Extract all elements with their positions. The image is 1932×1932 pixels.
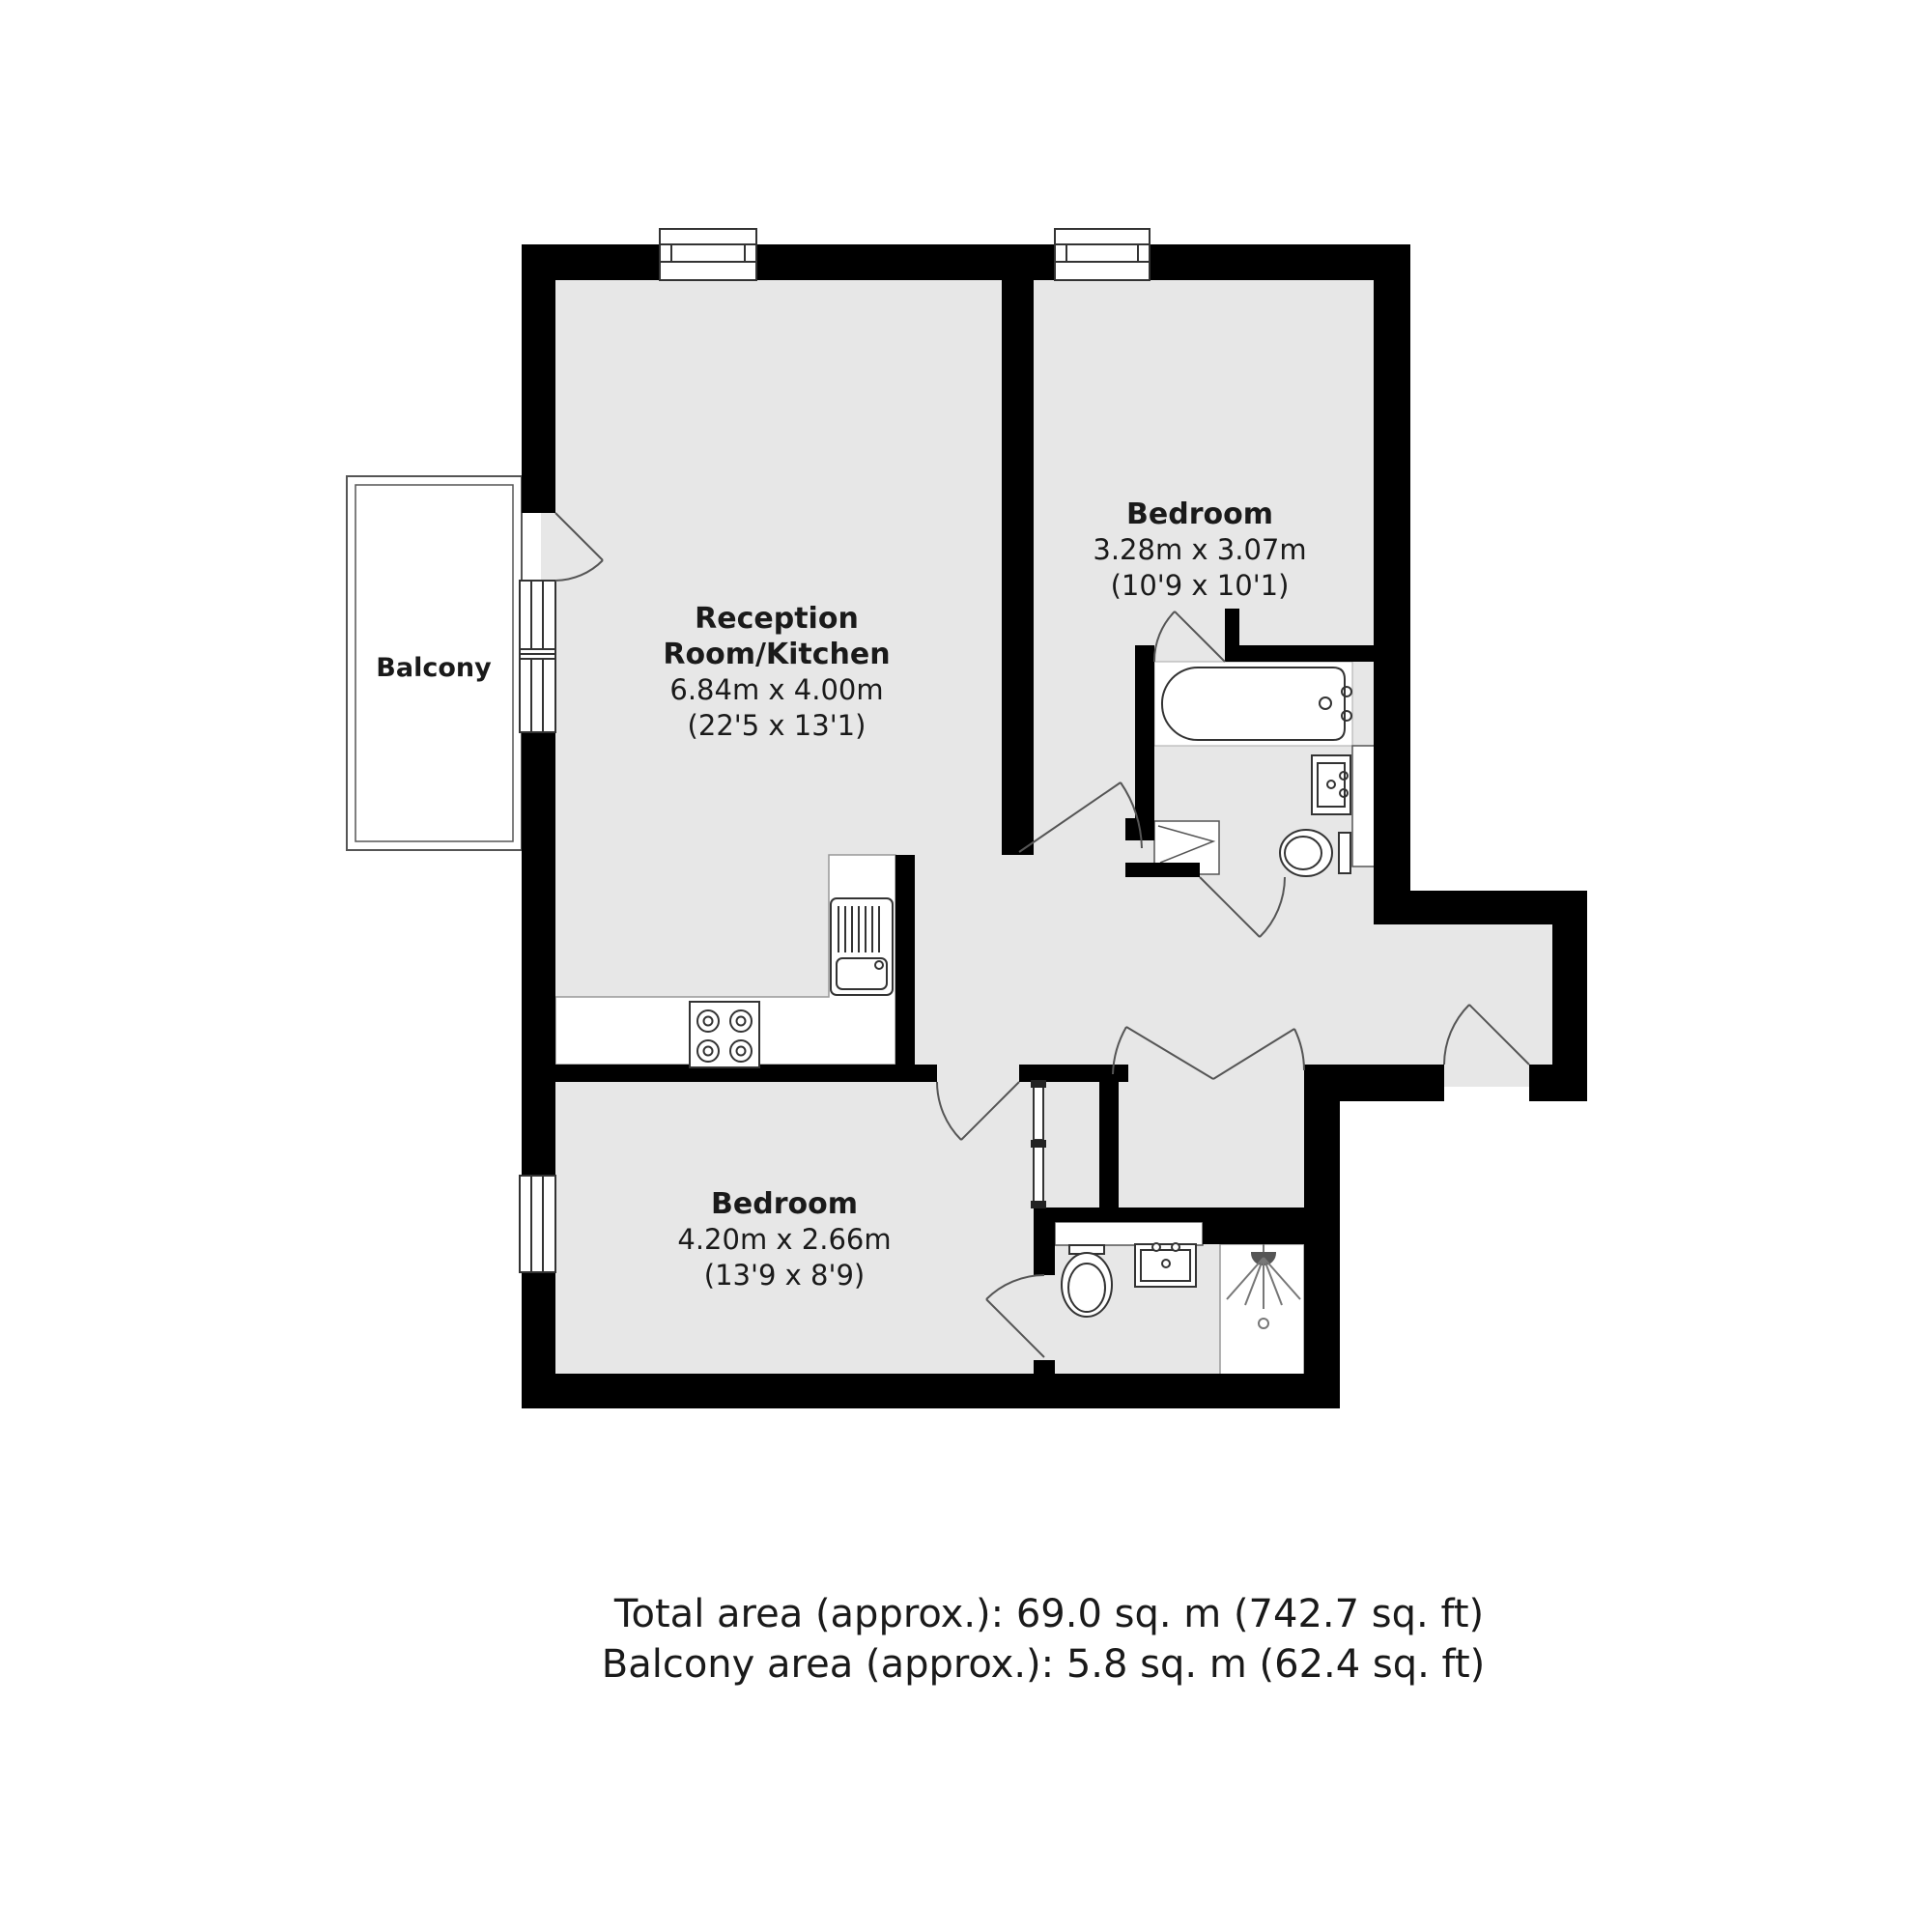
bathroom-vanity	[1352, 746, 1376, 867]
bedroom-top-label: Bedroom 3.28m x 3.07m (10'9 x 10'1)	[1093, 497, 1306, 604]
sliding-door-icon	[1031, 1080, 1046, 1208]
reception-size-imperial: (22'5 x 13'1)	[663, 708, 890, 744]
balcony-area-text: Balcony area (approx.): 5.8 sq. m (62.4 …	[602, 1639, 1485, 1690]
reception-label: Reception Room/Kitchen 6.84m x 4.00m (22…	[663, 601, 890, 744]
bedroom-bottom-size-metric: 4.20m x 2.66m	[677, 1222, 891, 1258]
bedroom-top-size-metric: 3.28m x 3.07m	[1093, 532, 1306, 568]
reception-name-line1: Reception	[663, 601, 890, 637]
bedroom-bottom-name: Bedroom	[677, 1186, 891, 1222]
ensuite-sink-icon	[1135, 1243, 1196, 1287]
bedroom-top-name: Bedroom	[1093, 497, 1306, 532]
reception-name-line2: Room/Kitchen	[663, 637, 890, 672]
total-area-text: Total area (approx.): 69.0 sq. m (742.7 …	[614, 1589, 1484, 1639]
bedroom-top-size-imperial: (10'9 x 10'1)	[1093, 568, 1306, 604]
reception-size-metric: 6.84m x 4.00m	[663, 672, 890, 708]
window-icon	[520, 1176, 555, 1272]
balcony-label: Balcony	[376, 653, 491, 683]
ensuite-vanity	[1055, 1222, 1203, 1245]
bedroom-bottom-label: Bedroom 4.20m x 2.66m (13'9 x 8'9)	[677, 1186, 891, 1293]
bedroom-bottom-size-imperial: (13'9 x 8'9)	[677, 1258, 891, 1293]
window-icon	[660, 229, 756, 280]
toilet-icon	[1280, 830, 1350, 876]
hob-icon	[690, 1002, 759, 1067]
bathroom-sink-icon	[1312, 755, 1350, 814]
floorplan-page: Balcony Reception Room/Kitchen 6.84m x 4…	[0, 0, 1932, 1932]
window-icon	[520, 581, 555, 732]
kitchen-sink-icon	[831, 898, 893, 995]
window-icon	[1055, 229, 1150, 280]
bathtub-icon	[1162, 668, 1351, 740]
